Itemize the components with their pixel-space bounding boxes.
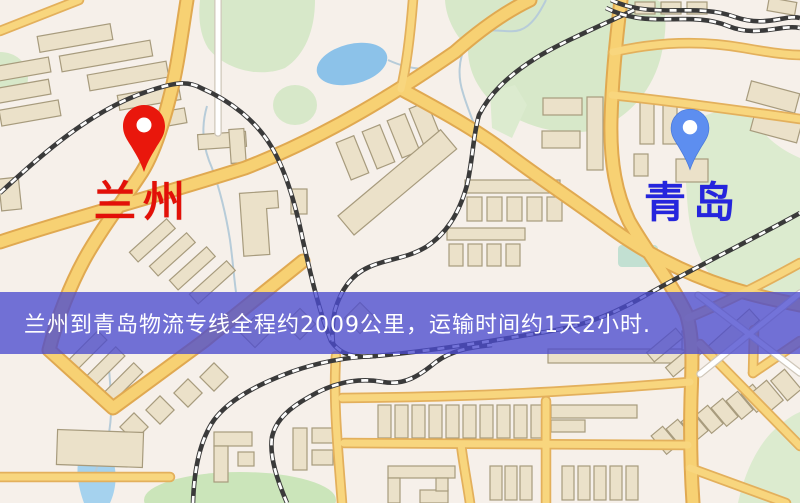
route-info-text: 兰州到青岛物流专线全程约2009公里，运输时间约1天2小时.: [24, 307, 651, 339]
map-canvas[interactable]: [0, 0, 800, 503]
qingdao-label: 青岛: [644, 182, 742, 224]
map-viewport[interactable]: 兰州 青岛 兰州到青岛物流专线全程约2009公里，运输时间约1天2小时.: [0, 0, 800, 503]
route-info-banner: 兰州到青岛物流专线全程约2009公里，运输时间约1天2小时.: [0, 292, 800, 354]
lanzhou-label: 兰州: [94, 181, 192, 223]
